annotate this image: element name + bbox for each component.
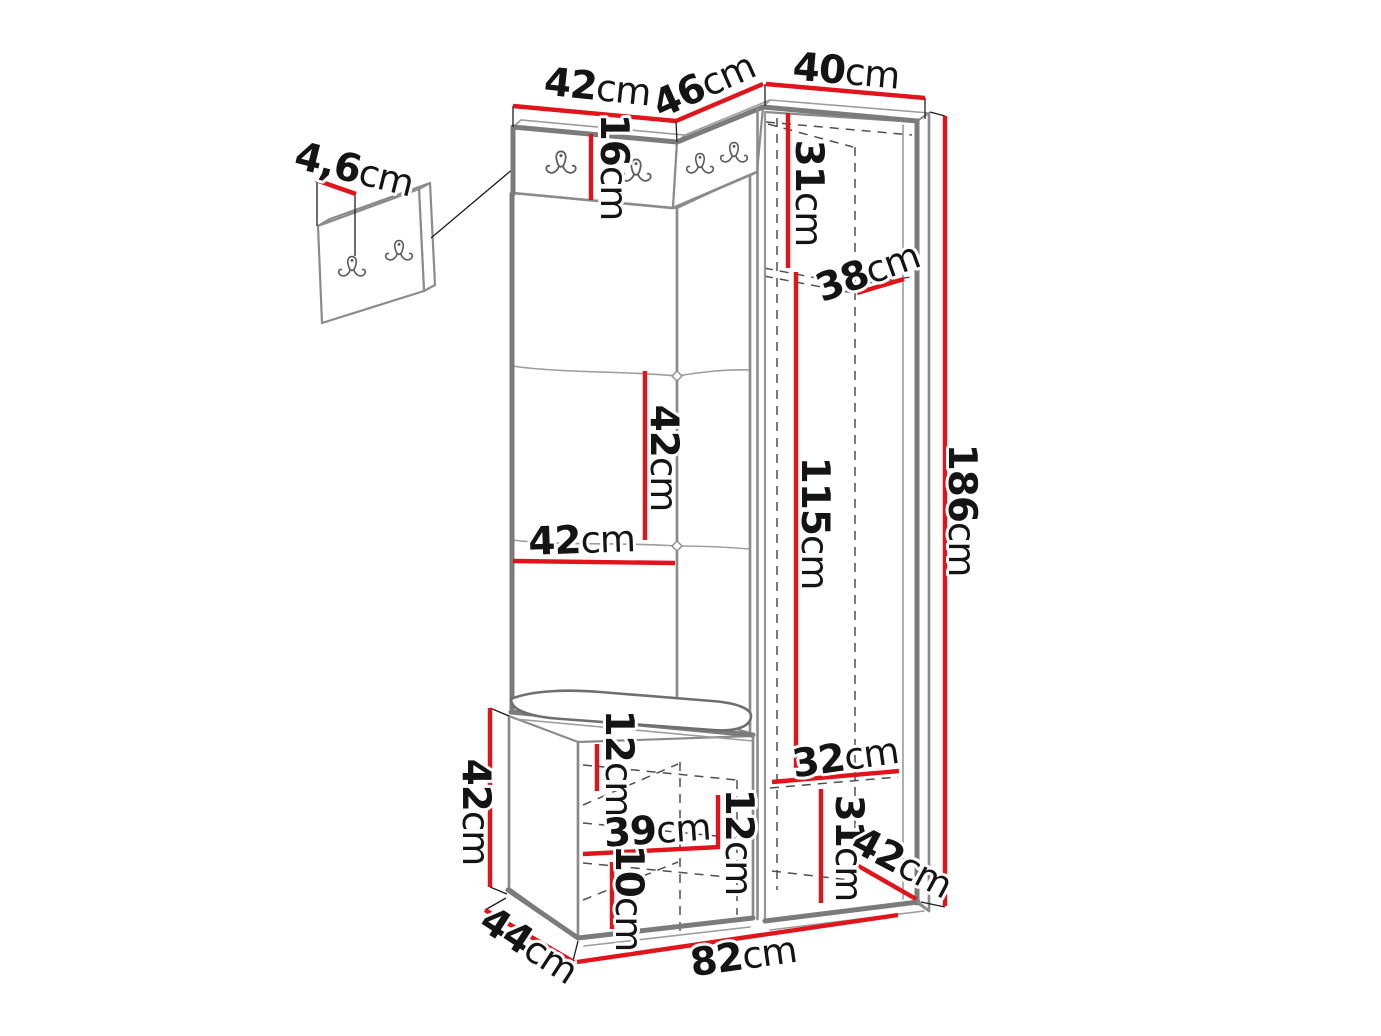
detail-hook-panel bbox=[318, 183, 435, 323]
diagram-canvas: 4,6cm 42cm 46cm 40cm 16cm 31cm 38cm 115c… bbox=[0, 0, 1381, 1036]
bench-left-face bbox=[509, 716, 578, 938]
dim-label-cab-upper-height: 31cm bbox=[786, 140, 831, 247]
dim-label-total-height: 186cm bbox=[939, 444, 984, 577]
dim-label-panel-tile-height: 42cm bbox=[641, 405, 686, 512]
dim-label-top-left-width: 42cm bbox=[542, 60, 653, 116]
dimension-diagram: 4,6cm 42cm 46cm 40cm 16cm 31cm 38cm 115c… bbox=[0, 0, 1381, 1036]
detail-panel-front-face bbox=[318, 189, 424, 323]
panel-angled-face bbox=[677, 174, 750, 733]
dim-label-cab-hanging-height: 115cm bbox=[792, 457, 837, 590]
dim-label-hook-strip-height: 16cm bbox=[591, 114, 636, 221]
dim-label-bench-plinth-height: 10cm bbox=[606, 845, 651, 952]
dim-label-panel-tile-width: 42cm bbox=[527, 516, 635, 565]
dim-label-top-right-width: 40cm bbox=[791, 44, 901, 98]
upholstered-panel-wall bbox=[512, 174, 750, 733]
dim-label-seat-clearance: 12cm bbox=[596, 710, 641, 817]
dim-label-bench-shelf-height: 12cm bbox=[716, 789, 761, 896]
dim-label-bottom-width: 82cm bbox=[687, 927, 799, 986]
dim-label-bench-height: 42cm bbox=[453, 759, 498, 866]
